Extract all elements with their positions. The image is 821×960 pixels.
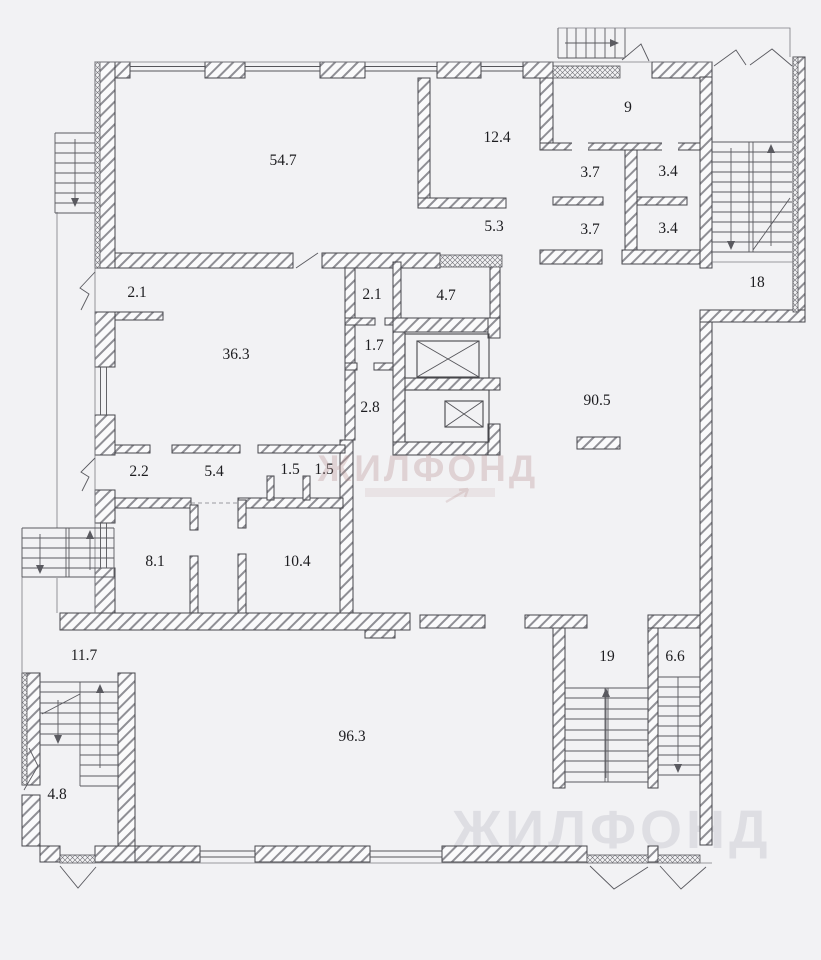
room-area-label: 36.3 [222,346,249,363]
room-area-label: 96.3 [338,728,365,745]
floor-plan-svg: ЖИЛФОНД [0,0,821,960]
room-area-label: 12.4 [483,129,510,146]
room-area-label: 3.7 [580,221,600,238]
room-area-label: 4.7 [436,287,456,304]
room-area-label: 19 [599,648,615,665]
elevator-shaft-2 [405,390,489,442]
room-area-label: 4.8 [47,786,67,803]
room-area-label: 3.7 [580,164,600,181]
room-area-label: 11.7 [71,647,98,664]
staircase-top-left [55,133,95,213]
room-area-label: 2.2 [129,463,148,480]
room-area-label: 54.7 [269,152,296,169]
room-area-label: 1.5 [280,461,300,478]
staircase-bottom-left [40,682,118,786]
room-area-label: 5.4 [204,463,224,480]
room-area-label: 3.4 [658,220,678,237]
staircase-6-6 [658,677,700,775]
elevator-shaft-1 [405,334,489,378]
room-area-label: 2.8 [360,399,380,416]
room-area-label: 9 [624,99,632,116]
room-area-label: 1.7 [364,337,384,354]
room-area-label: 3.4 [658,163,678,180]
staircase-top-entry [558,28,790,58]
room-area-label: 8.1 [145,553,164,570]
room-area-label: 2.1 [127,284,146,301]
watermark-center-subtitle-bar [365,488,495,497]
watermark-center-title: ЖИЛФОНД [317,448,538,489]
room-area-label: 5.3 [484,218,504,235]
room-area-label: 90.5 [583,392,610,409]
room-area-label: 2.1 [362,286,381,303]
floor-plan-canvas: ЖИЛФОНД [0,0,821,960]
room-area-label: 18 [749,274,765,291]
room-area-label: 10.4 [283,553,310,570]
room-area-label: 6.6 [665,648,685,665]
staircase-right [712,142,792,252]
staircase-19 [565,688,648,782]
